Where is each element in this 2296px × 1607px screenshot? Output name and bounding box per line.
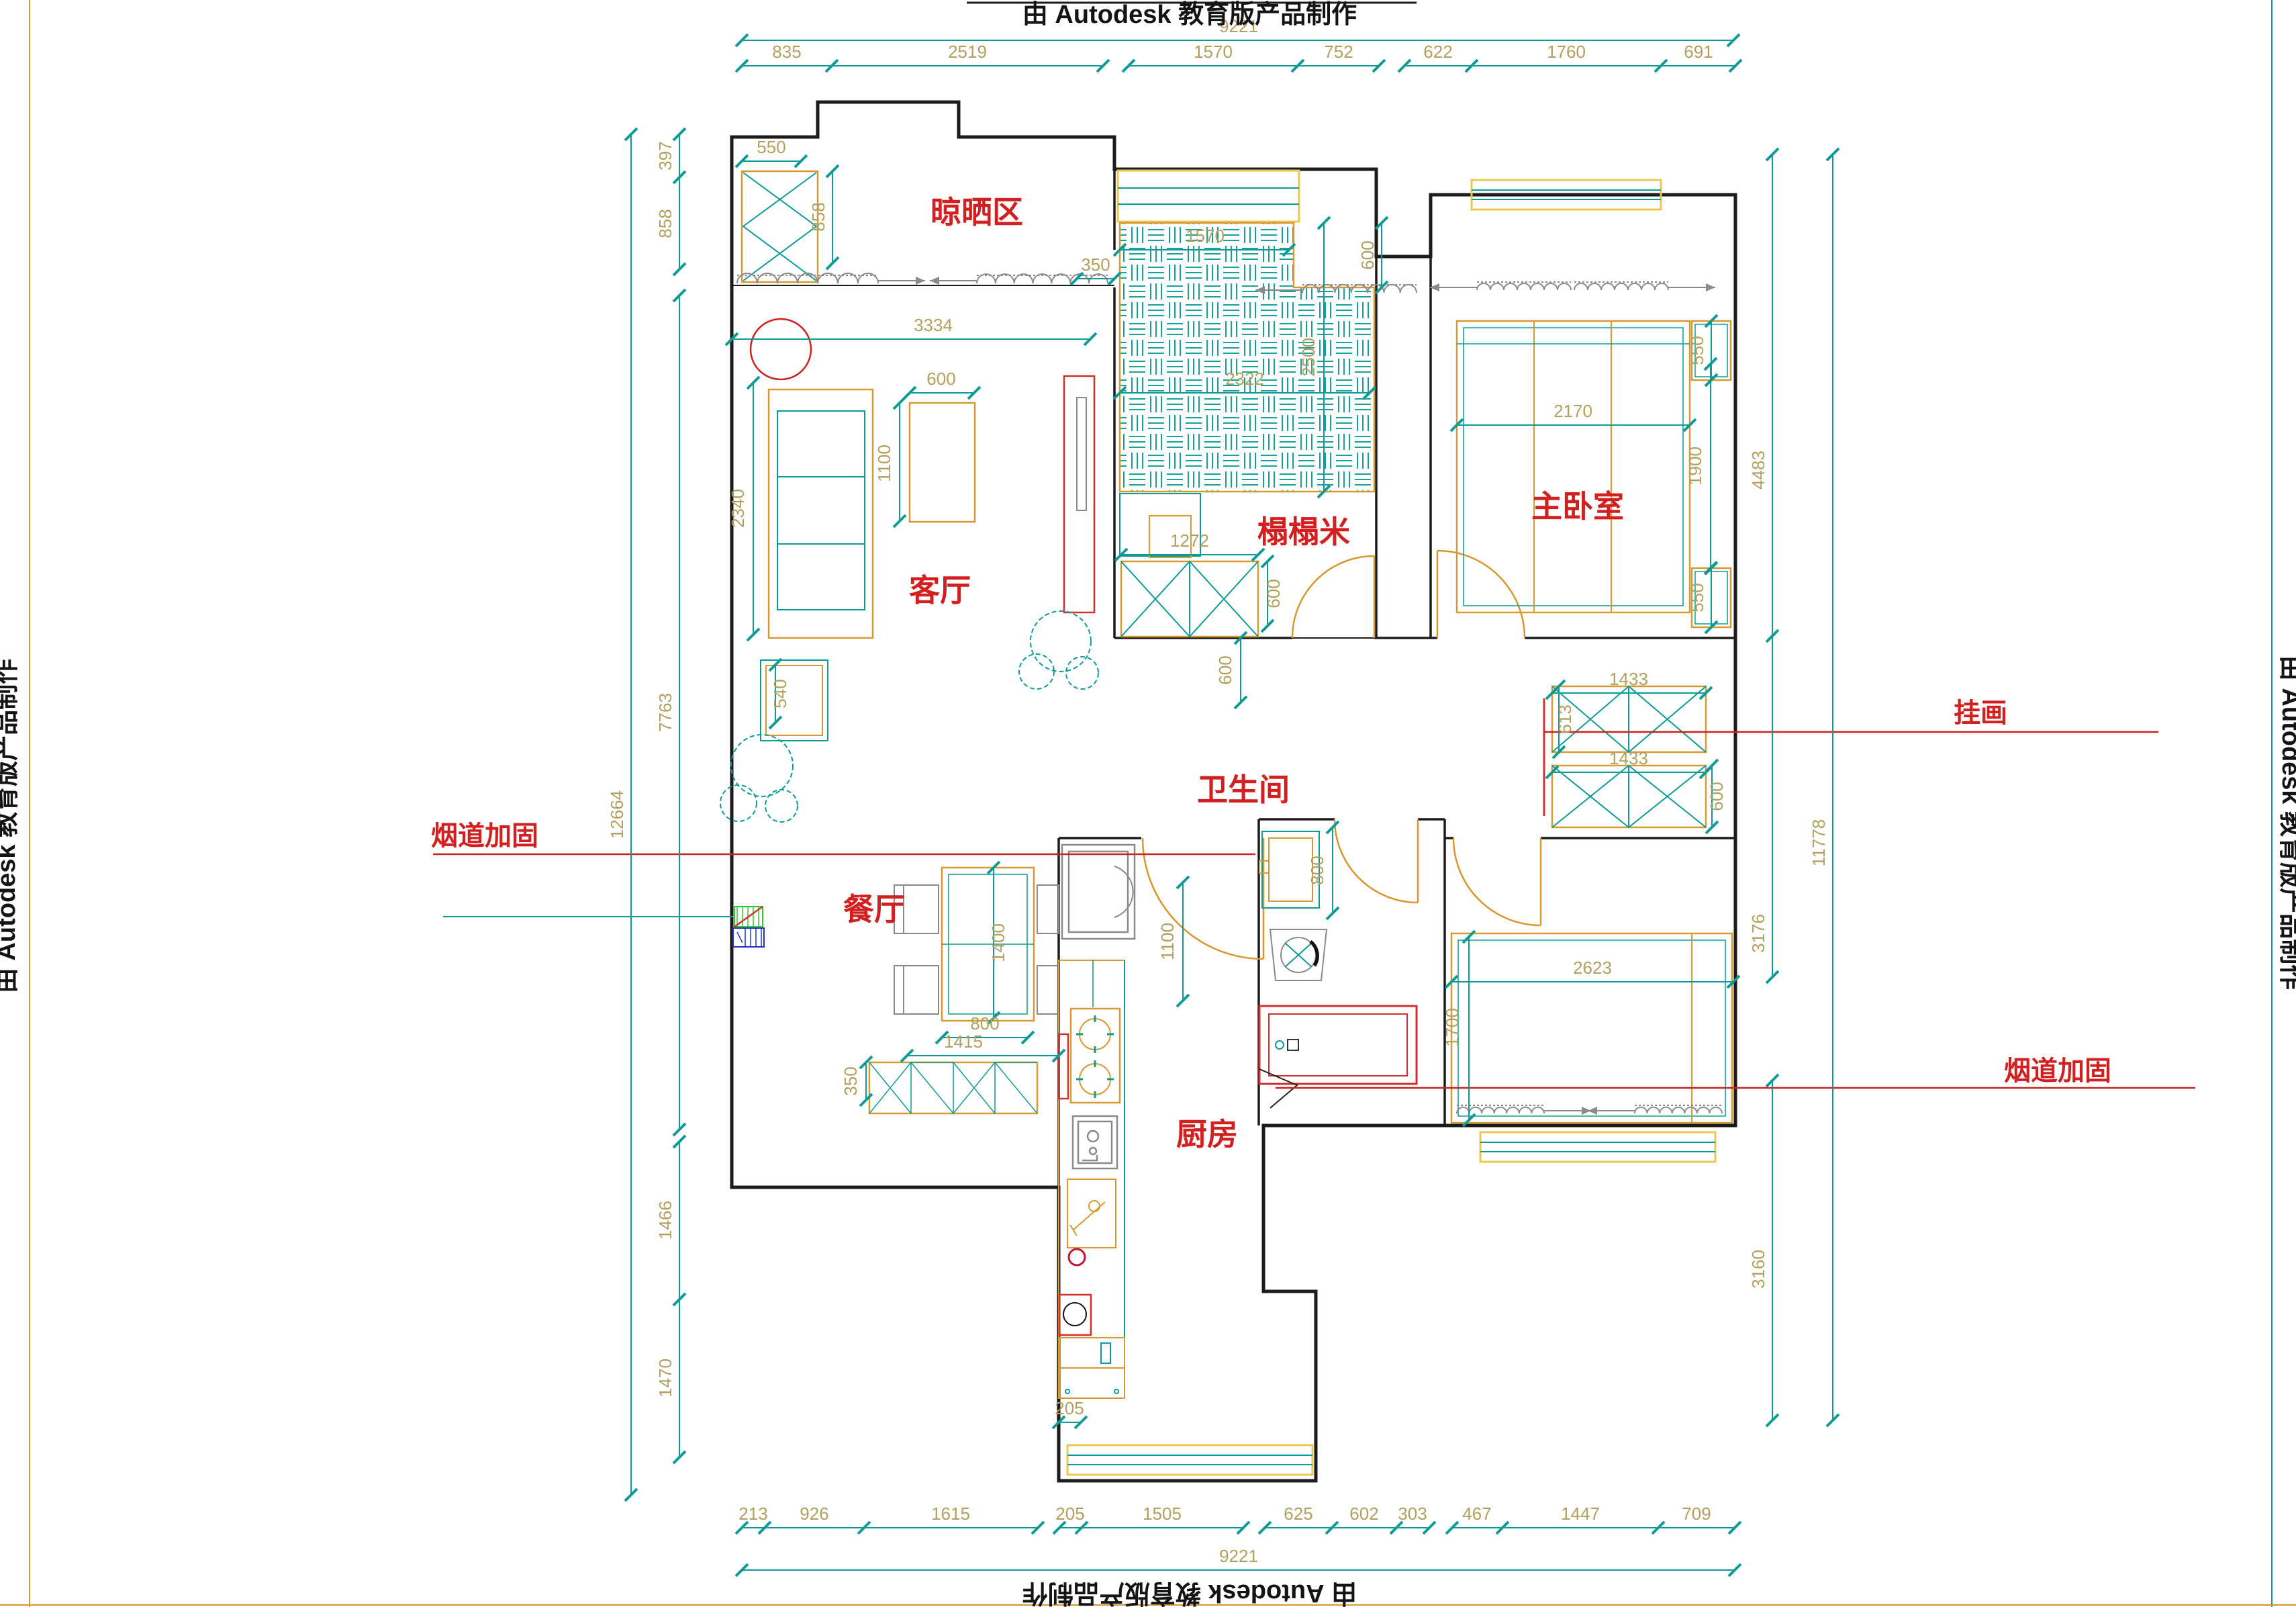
dimension-label: 9221 — [1219, 1546, 1258, 1566]
cutting-board — [1067, 1179, 1116, 1248]
dimension-label: 600 — [1707, 782, 1727, 811]
dimension-label: 1100 — [874, 445, 894, 482]
dimension-label: 600 — [1215, 655, 1235, 684]
dimension-label: 1760 — [1547, 42, 1586, 62]
washing-machine — [1059, 1295, 1091, 1335]
room-label-dining-room: 餐厅 — [843, 892, 905, 927]
dimension-label: 550 — [1687, 583, 1707, 612]
callout-flue-reinforce-left: 烟道加固 — [431, 821, 538, 851]
dimension-label: 858 — [808, 202, 828, 231]
dimension-label: 1570 — [1194, 42, 1233, 62]
dimension-label: 550 — [757, 137, 785, 157]
sofa — [769, 389, 873, 638]
dimension-label: 600 — [926, 369, 955, 389]
dimension-label: 2322 — [1225, 369, 1264, 389]
door-master — [1437, 551, 1525, 638]
watermark-text: 由 Autodesk 教育版产品制作 — [1022, 1, 1357, 29]
dimension-label: 1272 — [1170, 531, 1209, 551]
dimension-label: 2500 — [1298, 338, 1319, 377]
dimension-label: 1570 — [1186, 226, 1225, 246]
dimension-label: 3160 — [1748, 1250, 1768, 1289]
dimension-label: 800 — [970, 1013, 999, 1034]
room-label-master-bedroom: 主卧室 — [1531, 489, 1624, 524]
dimension-label: 1615 — [931, 1504, 970, 1524]
dimension-label: 625 — [1284, 1504, 1312, 1524]
dimension-label: 1447 — [1561, 1504, 1600, 1524]
kitchen-sink — [1073, 1116, 1117, 1168]
dimension-label: 1100 — [1157, 923, 1178, 960]
dimension-label: 12664 — [607, 790, 627, 839]
dimension-label: 1433 — [1609, 748, 1648, 768]
shoe-cabinet — [869, 1062, 1037, 1113]
dimension-label: 2623 — [1573, 958, 1612, 978]
floor-drain — [1069, 1249, 1085, 1265]
dimension-label: 205 — [1055, 1398, 1084, 1418]
dimension-label: 2519 — [948, 42, 987, 62]
tv-cabinet — [1064, 376, 1094, 612]
dimension-label: 205 — [1055, 1504, 1084, 1524]
kitchen-cabinet — [1059, 1338, 1125, 1398]
dimension-label: 1433 — [1609, 669, 1648, 689]
dimension-label: 752 — [1324, 42, 1353, 62]
window-kitchen-balcony — [1067, 1445, 1312, 1475]
bathtub — [1259, 1006, 1417, 1108]
round-table — [751, 319, 811, 379]
dimension-label: 2340 — [728, 489, 748, 528]
dimension-label: 3334 — [914, 315, 953, 335]
callout-hang-picture: 挂画 — [1954, 698, 2007, 728]
flue-marker — [733, 907, 764, 947]
dimension-label: 550 — [1687, 336, 1707, 365]
room-label-living-room: 客厅 — [909, 573, 971, 608]
dimension-label: 7763 — [655, 693, 675, 732]
dimension-label: 3176 — [1748, 914, 1768, 953]
coffee-table — [910, 403, 975, 522]
dimension-label: 350 — [841, 1066, 861, 1095]
watermark-text: 由 Autodesk 教育版产品制作 — [0, 659, 21, 993]
dimension-label: 1466 — [655, 1201, 675, 1240]
dimension-label: 613 — [1555, 704, 1575, 733]
fridge — [1062, 845, 1135, 939]
dimension-label: 1470 — [655, 1359, 675, 1397]
dimension-label: 1900 — [1685, 447, 1705, 486]
dimension-label: 709 — [1682, 1504, 1711, 1524]
dimension-label: 858 — [655, 209, 675, 238]
door-bathroom — [1335, 819, 1418, 903]
dimension-label: 1400 — [988, 923, 1008, 962]
drying-area-cabinet — [742, 171, 818, 282]
toilet — [1270, 929, 1327, 980]
dimension-label: 1415 — [944, 1031, 983, 1052]
dimension-label: 303 — [1398, 1504, 1427, 1524]
dimension-label: 926 — [800, 1504, 828, 1524]
dimension-label: 2170 — [1553, 401, 1592, 421]
watermark-text: 由 Autodesk 教育版产品制作 — [1022, 1579, 1357, 1607]
room-label-drying-area: 晾晒区 — [930, 195, 1023, 230]
room-label-bathroom: 卫生间 — [1197, 772, 1290, 807]
dimension-label: 11778 — [1809, 819, 1829, 866]
door-tatami — [1292, 556, 1374, 638]
dimension-label: 350 — [1081, 255, 1110, 275]
dimension-label: 602 — [1349, 1504, 1378, 1524]
watermark-text: 由 Autodesk 教育版产品制作 — [2277, 655, 2296, 990]
dimension-label: 622 — [1423, 42, 1452, 62]
dimension-label: 213 — [738, 1504, 767, 1524]
dimension-label: 691 — [1684, 42, 1713, 62]
dimension-label: 1505 — [1143, 1504, 1182, 1524]
window-tatami-balcony — [1118, 171, 1299, 222]
dimension-label: 397 — [655, 141, 675, 170]
dimension-label: 4483 — [1748, 451, 1768, 490]
room-label-kitchen: 厨房 — [1176, 1117, 1238, 1152]
room-label-tatami: 榻榻米 — [1257, 514, 1350, 549]
stove — [1059, 1009, 1120, 1103]
window-bedroom2 — [1480, 1132, 1715, 1162]
tatami-wardrobe — [1121, 561, 1258, 637]
dimension-label: 600 — [1357, 240, 1378, 269]
dimension-label: 800 — [1307, 856, 1327, 884]
dimension-label: 600 — [1263, 579, 1284, 608]
dimension-label: 540 — [770, 679, 790, 708]
plants — [720, 611, 1098, 822]
tatami-hatch — [1120, 223, 1374, 492]
door-bedroom2 — [1453, 838, 1541, 925]
callout-flue-reinforce-right: 烟道加固 — [2004, 1056, 2111, 1086]
leader-lines — [433, 732, 2195, 1088]
dimension-label: 835 — [772, 42, 801, 62]
dimension-label: 1700 — [1442, 1008, 1462, 1047]
floor-plan-canvas: 9221835251915707526221760691213926161520… — [0, 0, 2296, 1607]
cad-floor-plan-page: 9221835251915707526221760691213926161520… — [0, 0, 2296, 1607]
dimension-label: 467 — [1462, 1504, 1491, 1524]
